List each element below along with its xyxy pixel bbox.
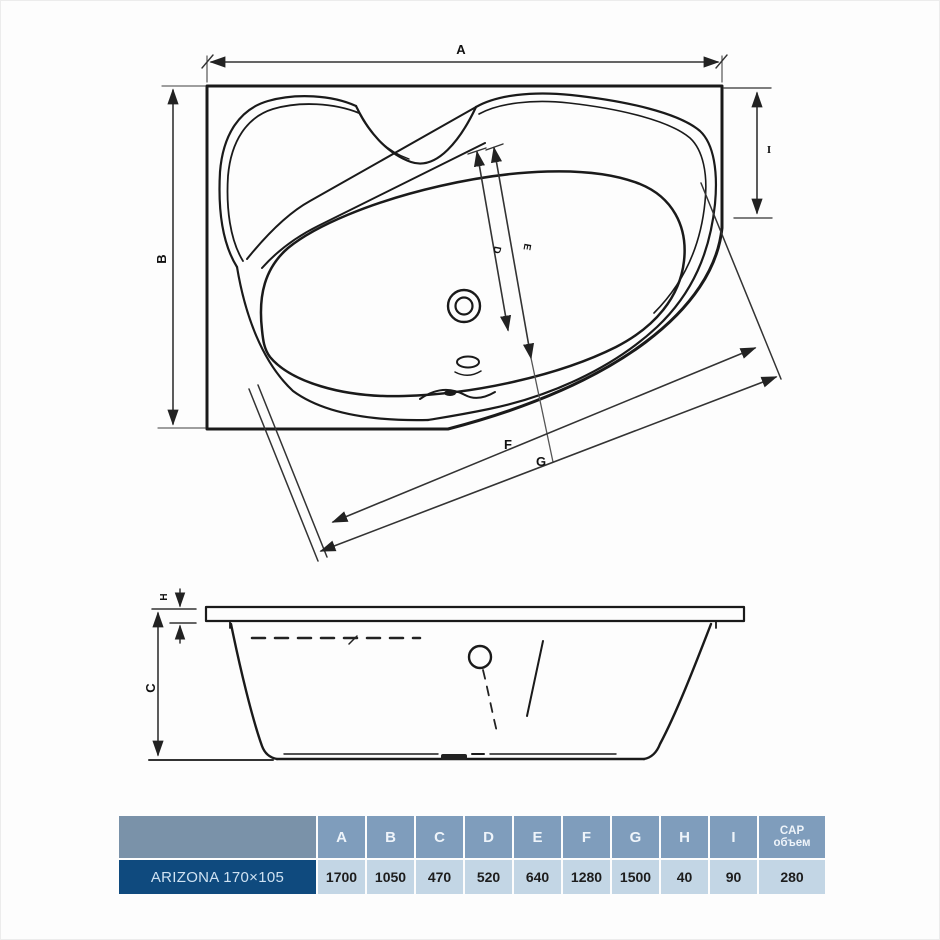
table-header-col-g: G	[612, 816, 659, 858]
technical-drawing-sheet: A B I D E F G	[0, 0, 940, 940]
table-header-col-i: I	[710, 816, 757, 858]
rim-left-lobe-inner	[228, 104, 359, 261]
dim-d-label: D	[490, 245, 502, 254]
side-right-wall	[644, 624, 711, 759]
bowl-outline	[261, 171, 685, 396]
table-header-col-b: B	[367, 816, 414, 858]
table-value-e: 640	[514, 860, 561, 894]
table-header-col-a: A	[318, 816, 365, 858]
dim-e-label: E	[520, 243, 532, 252]
jet-arc	[455, 371, 481, 375]
dim-i-extensions	[724, 88, 772, 218]
grip-wave-right	[465, 392, 495, 398]
drain-outer-ring	[448, 290, 480, 322]
shell-outline	[207, 86, 722, 429]
side-left-wall	[231, 624, 277, 759]
dim-g-label: G	[536, 454, 546, 469]
rim-right-lobe-outer	[428, 94, 716, 421]
side-overflow-dashed-pipe	[483, 670, 497, 732]
spec-table: A B C D E F G H I CAP объем ARIZONA 170×…	[119, 816, 825, 894]
top-view: A B I D E F G	[154, 42, 781, 561]
table-header-col-cap: CAP объем	[759, 816, 825, 858]
table-row-product-name: ARIZONA 170×105	[119, 860, 316, 894]
dim-fg-extension-left-2	[258, 385, 327, 557]
dim-a-extensions	[207, 56, 722, 82]
dim-fg-extension-right	[701, 183, 781, 379]
bathtub-drawing: A B I D E F G	[0, 0, 940, 940]
table-value-b: 1050	[367, 860, 414, 894]
rim-band-upper	[247, 107, 476, 259]
table-header-col-e: E	[514, 816, 561, 858]
rim-scallop-inner	[359, 113, 409, 159]
cap-header-line2: объем	[773, 837, 810, 849]
grip-dot	[444, 390, 456, 396]
dim-fg-extension-left-1	[249, 389, 318, 561]
table-header-col-h: H	[661, 816, 708, 858]
table-value-c: 470	[416, 860, 463, 894]
table-value-d: 520	[465, 860, 512, 894]
table-value-a: 1700	[318, 860, 365, 894]
rim-left-lobe-outer	[220, 96, 356, 267]
side-overflow-hole	[469, 646, 491, 668]
table-header-name-cell	[119, 816, 316, 858]
side-drain-trap	[441, 754, 467, 760]
dim-d-line	[477, 152, 508, 330]
table-header-col-c: C	[416, 816, 463, 858]
dim-b-label: B	[154, 254, 169, 263]
side-view: H C	[143, 589, 744, 760]
drain-inner-ring	[456, 298, 473, 315]
dim-c-label: C	[143, 683, 158, 693]
dim-g-line	[321, 377, 776, 551]
dim-h-label: H	[159, 593, 170, 600]
side-rim-bar	[206, 607, 744, 621]
table-header-col-f: F	[563, 816, 610, 858]
table-value-cap: 280	[759, 860, 825, 894]
side-inner-edge-line	[527, 641, 543, 716]
table-value-g: 1500	[612, 860, 659, 894]
dim-a-label: A	[456, 42, 466, 57]
dim-f-label: F	[504, 437, 512, 452]
jet-oval	[457, 357, 479, 368]
dim-i-label: I	[767, 144, 771, 156]
table-value-i: 90	[710, 860, 757, 894]
table-value-h: 40	[661, 860, 708, 894]
table-header-col-d: D	[465, 816, 512, 858]
cap-header-line1: CAP	[780, 825, 804, 837]
table-value-f: 1280	[563, 860, 610, 894]
